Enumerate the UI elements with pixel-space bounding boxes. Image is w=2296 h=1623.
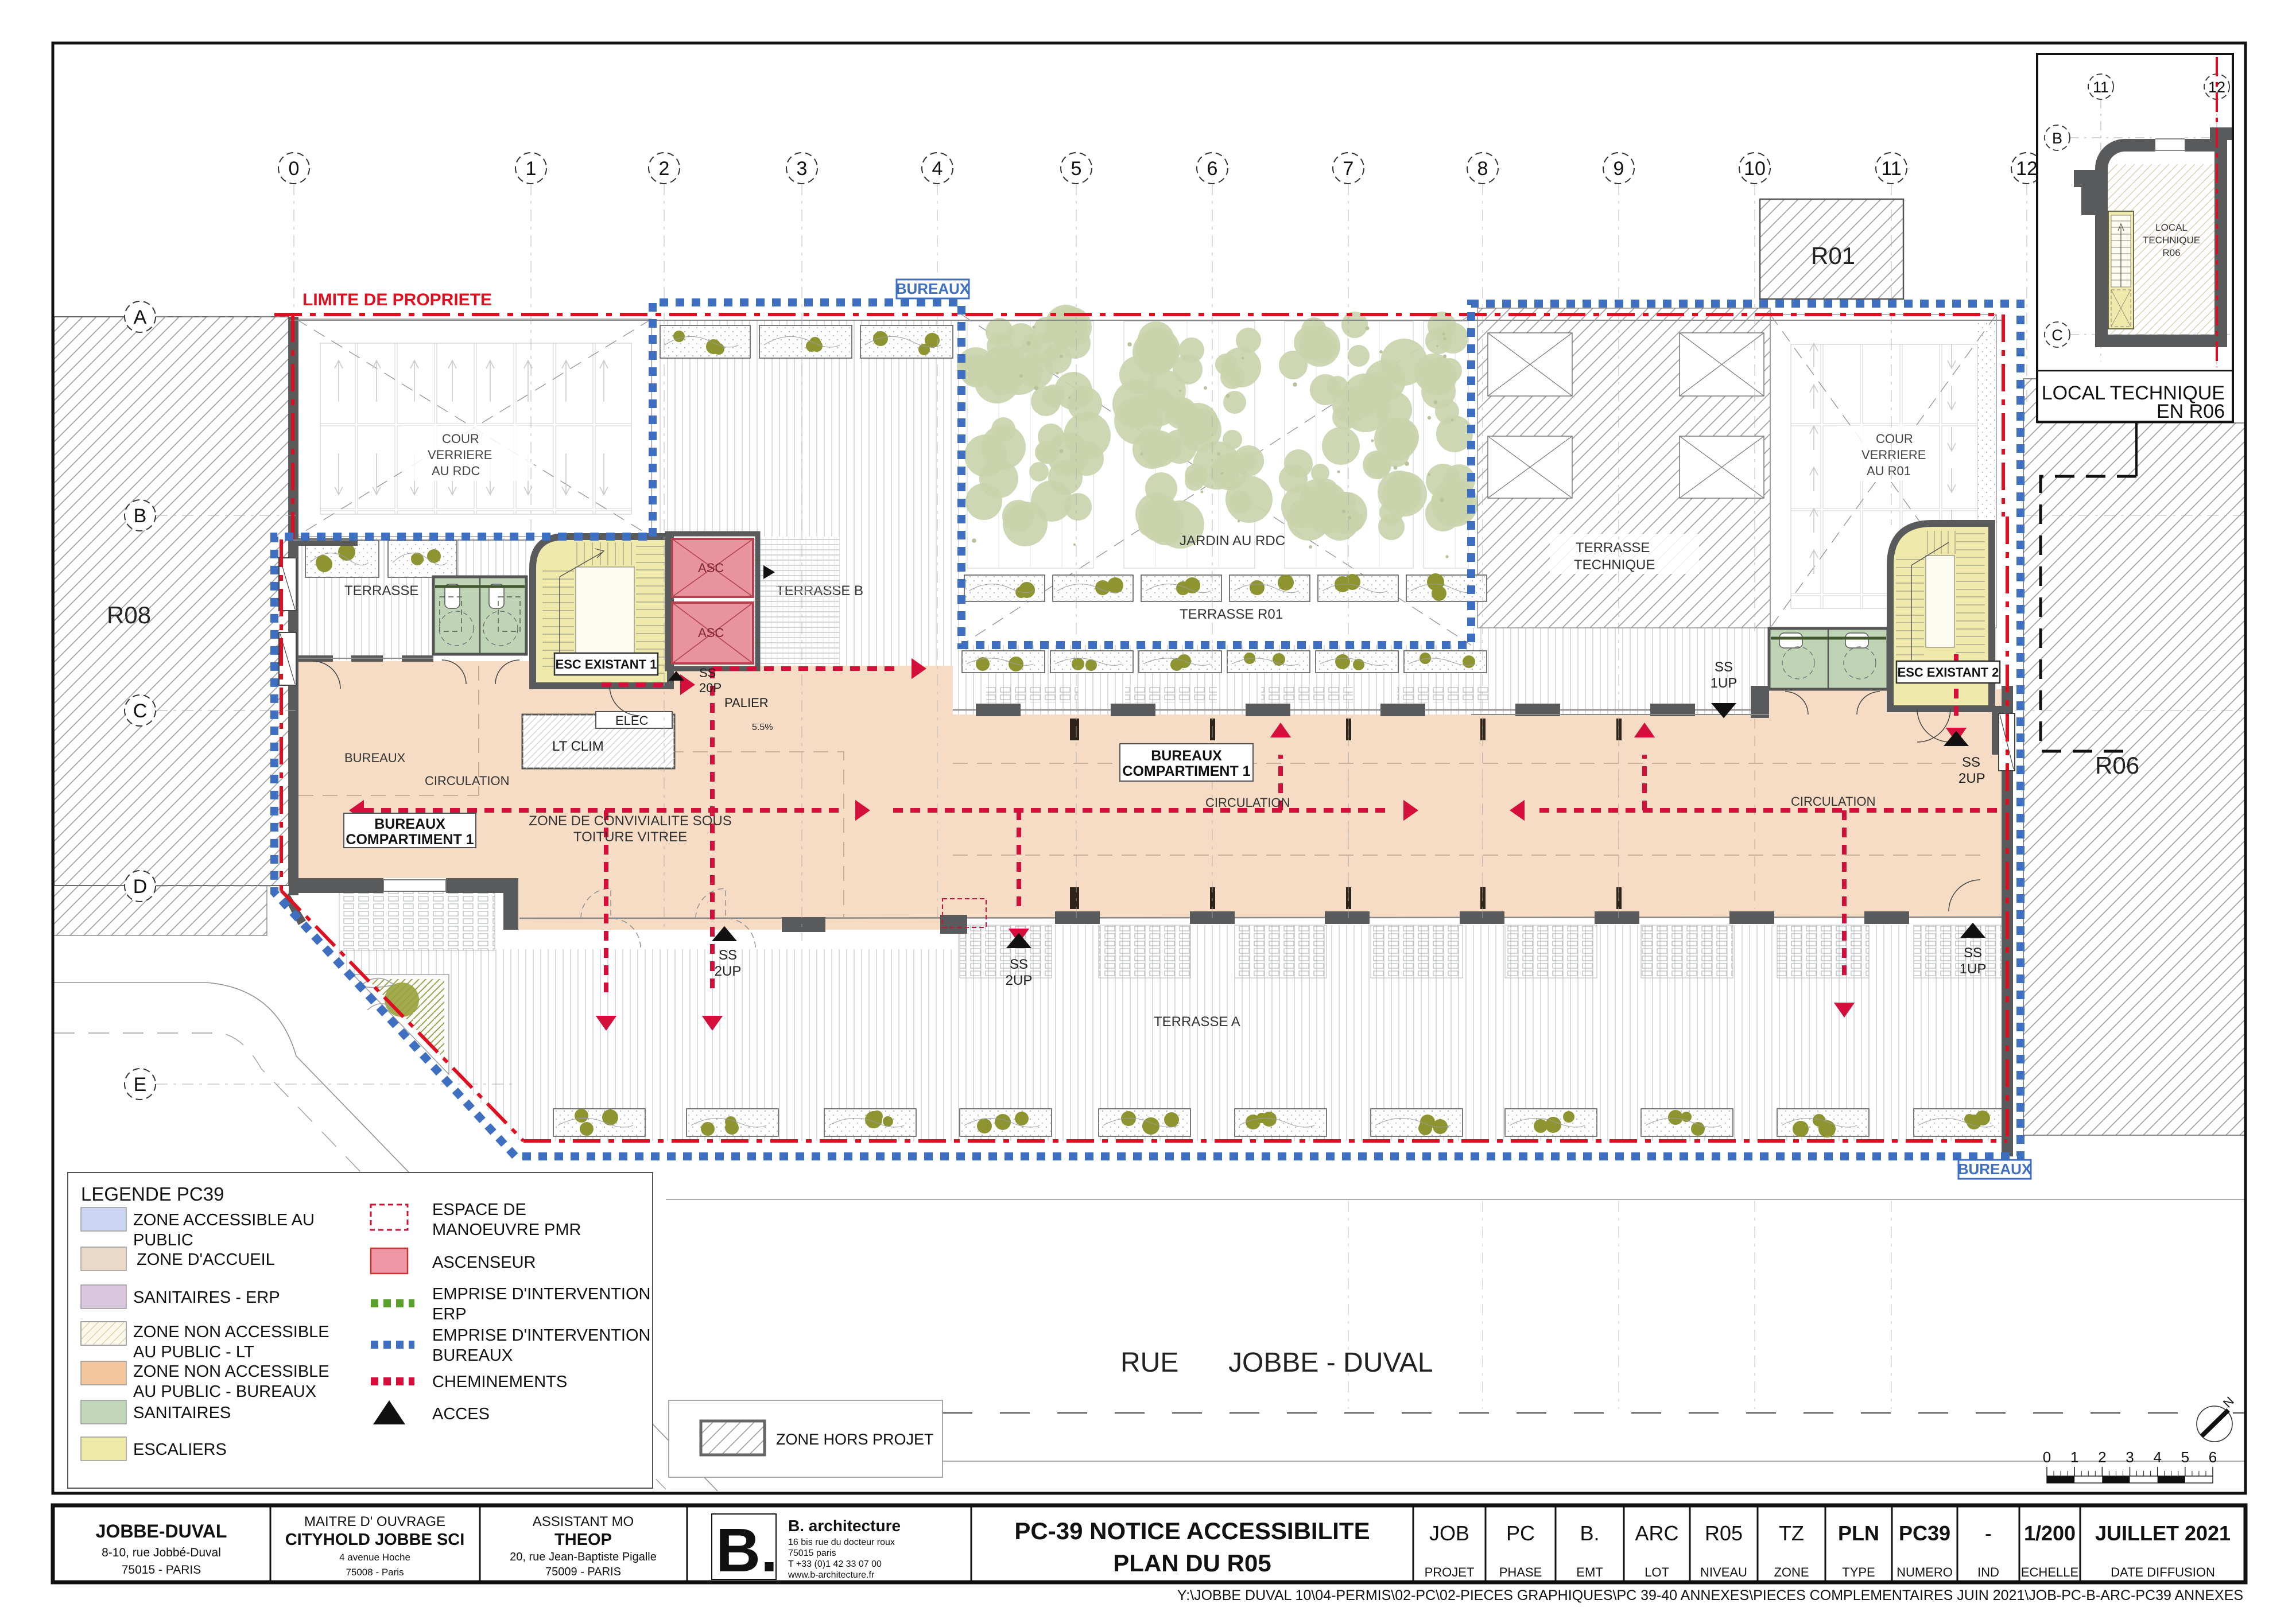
svg-text:PC-39 NOTICE ACCESSIBILITE: PC-39 NOTICE ACCESSIBILITE	[1014, 1517, 1370, 1544]
svg-text:5: 5	[2181, 1449, 2189, 1466]
svg-text:11: 11	[1881, 158, 1901, 180]
svg-text:B: B	[134, 505, 147, 527]
svg-text:ASSISTANT MO: ASSISTANT MO	[533, 1514, 634, 1529]
svg-text:CIRCULATION: CIRCULATION	[1791, 794, 1876, 809]
svg-text:JUILLET 2021: JUILLET 2021	[2095, 1521, 2231, 1545]
svg-text:LEGENDE PC39: LEGENDE PC39	[81, 1183, 224, 1205]
svg-text:PROJET: PROJET	[1425, 1565, 1475, 1579]
svg-text:BUREAUX: BUREAUX	[1958, 1160, 2032, 1178]
svg-text:B.: B.	[1580, 1521, 1599, 1545]
svg-text:11: 11	[2093, 79, 2109, 96]
svg-text:ZONE NON ACCESSIBLE: ZONE NON ACCESSIBLE	[133, 1323, 329, 1341]
svg-text:BUREAUX: BUREAUX	[374, 816, 445, 832]
svg-text:TOITURE VITREE: TOITURE VITREE	[573, 829, 687, 845]
svg-text:LT CLIM: LT CLIM	[552, 739, 604, 754]
svg-text:EMPRISE D'INTERVENTION: EMPRISE D'INTERVENTION	[432, 1326, 650, 1345]
svg-text:ASCENSEUR: ASCENSEUR	[432, 1253, 536, 1272]
svg-text:TZ: TZ	[1779, 1521, 1804, 1545]
svg-text:2: 2	[2098, 1449, 2106, 1466]
svg-text:3: 3	[797, 158, 808, 180]
svg-text:1UP: 1UP	[1711, 675, 1737, 691]
svg-text:TERRASSE R01: TERRASSE R01	[1180, 607, 1283, 622]
svg-text:9: 9	[1614, 158, 1624, 180]
svg-text:R01: R01	[1811, 242, 1855, 269]
svg-text:1: 1	[526, 158, 537, 180]
svg-text:TECHNIQUE: TECHNIQUE	[2143, 235, 2200, 246]
svg-text:ELEC: ELEC	[615, 713, 649, 728]
svg-text:BUREAUX: BUREAUX	[896, 280, 970, 297]
svg-text:C: C	[2051, 327, 2063, 344]
svg-text:LOCAL: LOCAL	[2155, 222, 2188, 233]
svg-text:6: 6	[2209, 1449, 2217, 1466]
svg-text:ZONE HORS PROJET: ZONE HORS PROJET	[776, 1431, 934, 1448]
svg-text:5.5%: 5.5%	[752, 723, 773, 732]
svg-text:JOBBE - DUVAL: JOBBE - DUVAL	[1228, 1348, 1433, 1378]
svg-text:ZONE NON ACCESSIBLE: ZONE NON ACCESSIBLE	[133, 1362, 329, 1381]
svg-text:20, rue Jean-Baptiste Pigalle: 20, rue Jean-Baptiste Pigalle	[510, 1551, 657, 1563]
svg-text:CHEMINEMENTS: CHEMINEMENTS	[432, 1373, 567, 1391]
svg-text:IND: IND	[1977, 1565, 1999, 1579]
svg-text:8-10, rue Jobbé-Duval: 8-10, rue Jobbé-Duval	[102, 1546, 221, 1559]
svg-text:THEOP: THEOP	[554, 1531, 612, 1549]
svg-text:NUMERO: NUMERO	[1896, 1565, 1953, 1579]
svg-text:www.b-architecture.fr: www.b-architecture.fr	[788, 1570, 875, 1580]
svg-text:BUREAUX: BUREAUX	[1151, 748, 1222, 764]
svg-text:SANITAIRES: SANITAIRES	[133, 1404, 231, 1422]
svg-text:16 bis rue du docteur roux: 16 bis rue du docteur roux	[788, 1537, 895, 1547]
svg-text:0: 0	[289, 158, 300, 180]
svg-text:Y:\JOBBE DUVAL 10\04-PERMIS\02: Y:\JOBBE DUVAL 10\04-PERMIS\02-PC\02-PIE…	[1177, 1587, 2243, 1603]
svg-text:VERRIERE: VERRIERE	[1861, 448, 1926, 462]
svg-text:B.: B.	[716, 1515, 778, 1585]
svg-text:SS: SS	[1715, 659, 1733, 675]
svg-text:MAITRE D' OUVRAGE: MAITRE D' OUVRAGE	[304, 1514, 445, 1529]
svg-text:TERRASSE: TERRASSE	[1576, 540, 1650, 556]
svg-text:E: E	[134, 1074, 147, 1096]
svg-text:COMPARTIMENT 1: COMPARTIMENT 1	[346, 832, 474, 848]
svg-text:1/200: 1/200	[2024, 1521, 2076, 1545]
svg-text:ZONE D'ACCUEIL: ZONE D'ACCUEIL	[137, 1251, 275, 1269]
svg-text:EMPRISE D'INTERVENTION: EMPRISE D'INTERVENTION	[432, 1285, 650, 1303]
svg-text:VERRIERE: VERRIERE	[428, 448, 492, 462]
svg-text:CITYHOLD JOBBE SCI: CITYHOLD JOBBE SCI	[285, 1531, 465, 1549]
svg-text:75015 - PARIS: 75015 - PARIS	[122, 1563, 201, 1577]
svg-text:SS: SS	[1010, 957, 1028, 972]
svg-text:2: 2	[659, 158, 670, 180]
svg-text:TYPE: TYPE	[1842, 1565, 1875, 1579]
svg-text:COUR: COUR	[1876, 432, 1913, 446]
svg-text:0: 0	[2043, 1449, 2051, 1466]
svg-text:75008 - Paris: 75008 - Paris	[346, 1567, 404, 1578]
svg-text:ESC EXISTANT 1: ESC EXISTANT 1	[556, 657, 657, 671]
svg-text:BUREAUX: BUREAUX	[344, 751, 406, 765]
svg-text:AU R01: AU R01	[1867, 464, 1911, 478]
svg-text:B. architecture: B. architecture	[788, 1517, 901, 1535]
svg-text:2UP: 2UP	[1958, 771, 1985, 786]
svg-text:4 avenue Hoche: 4 avenue Hoche	[339, 1552, 410, 1563]
svg-text:AU PUBLIC - BUREAUX: AU PUBLIC - BUREAUX	[133, 1383, 316, 1401]
svg-text:COMPARTIMENT 1: COMPARTIMENT 1	[1122, 763, 1250, 779]
svg-text:4: 4	[2153, 1449, 2161, 1466]
svg-text:SS: SS	[1964, 945, 1982, 961]
svg-text:JOB: JOB	[1429, 1521, 1469, 1545]
svg-text:ACCES: ACCES	[432, 1405, 490, 1423]
svg-text:AU PUBLIC - LT: AU PUBLIC - LT	[133, 1343, 254, 1361]
svg-text:SANITAIRES - ERP: SANITAIRES - ERP	[133, 1288, 280, 1307]
svg-text:JOBBE-DUVAL: JOBBE-DUVAL	[96, 1521, 227, 1542]
svg-text:R08: R08	[107, 601, 151, 628]
svg-text:MANOEUVRE PMR: MANOEUVRE PMR	[432, 1221, 581, 1239]
svg-text:AU RDC: AU RDC	[432, 464, 480, 478]
svg-text:ARC: ARC	[1635, 1521, 1678, 1545]
svg-text:R05: R05	[1705, 1521, 1743, 1545]
svg-text:ESPACE DE: ESPACE DE	[432, 1201, 526, 1219]
svg-text:TECHNIQUE: TECHNIQUE	[1574, 557, 1655, 573]
svg-text:SS: SS	[719, 948, 737, 963]
svg-text:LOT: LOT	[1645, 1565, 1669, 1579]
svg-text:R06: R06	[2162, 247, 2180, 258]
svg-text:20P: 20P	[699, 681, 722, 695]
svg-text:ASC: ASC	[698, 626, 724, 640]
svg-text:BUREAUX: BUREAUX	[432, 1346, 513, 1365]
svg-text:ZONE DE CONVIVIALITE SOUS: ZONE DE CONVIVIALITE SOUS	[529, 813, 731, 829]
svg-text:6: 6	[1207, 158, 1218, 180]
svg-text:75015 paris: 75015 paris	[788, 1548, 836, 1558]
svg-text:ERP: ERP	[432, 1305, 467, 1323]
svg-text:2UP: 2UP	[1006, 973, 1033, 988]
svg-text:PC: PC	[1506, 1521, 1535, 1545]
svg-text:75009 - PARIS: 75009 - PARIS	[545, 1566, 621, 1578]
svg-text:3: 3	[2126, 1449, 2134, 1466]
svg-text:R06: R06	[2095, 752, 2139, 779]
svg-text:D: D	[133, 876, 148, 898]
svg-text:PHASE: PHASE	[1499, 1565, 1542, 1579]
svg-text:T +33 (0)1 42 33 07 00: T +33 (0)1 42 33 07 00	[788, 1559, 882, 1569]
svg-text:ZONE ACCESSIBLE AU: ZONE ACCESSIBLE AU	[133, 1211, 315, 1229]
svg-text:ZONE: ZONE	[1774, 1565, 1809, 1579]
svg-text:EN R06: EN R06	[2157, 401, 2225, 422]
svg-text:JARDIN AU RDC: JARDIN AU RDC	[1180, 533, 1285, 549]
svg-text:C: C	[133, 700, 148, 722]
svg-text:-: -	[1985, 1521, 1992, 1545]
svg-text:NIVEAU: NIVEAU	[1700, 1565, 1747, 1579]
svg-text:10: 10	[1744, 158, 1766, 180]
svg-text:PALIER: PALIER	[724, 696, 769, 710]
svg-text:RUE: RUE	[1120, 1348, 1178, 1378]
svg-text:ECHELLE: ECHELLE	[2021, 1565, 2078, 1579]
svg-text:PUBLIC: PUBLIC	[133, 1231, 193, 1249]
svg-text:COUR: COUR	[442, 432, 479, 446]
svg-text:ESCALIERS: ESCALIERS	[133, 1440, 227, 1459]
svg-text:TERRASSE: TERRASSE	[344, 583, 418, 599]
svg-text:1: 1	[2070, 1449, 2078, 1466]
svg-text:CIRCULATION: CIRCULATION	[425, 774, 510, 788]
svg-text:B: B	[2052, 130, 2062, 147]
svg-text:PC39: PC39	[1899, 1521, 1950, 1545]
svg-text:ASC: ASC	[698, 561, 724, 575]
svg-text:PLN: PLN	[1838, 1521, 1879, 1545]
svg-text:DATE DIFFUSION: DATE DIFFUSION	[2111, 1565, 2215, 1579]
svg-text:ESC EXISTANT 2: ESC EXISTANT 2	[1898, 665, 1999, 680]
svg-text:EMT: EMT	[1576, 1565, 1603, 1579]
svg-text:SS: SS	[699, 666, 716, 680]
svg-text:8: 8	[1477, 158, 1488, 180]
svg-text:5: 5	[1071, 158, 1082, 180]
svg-text:LIMITE DE PROPRIETE: LIMITE DE PROPRIETE	[302, 290, 492, 309]
svg-text:A: A	[134, 306, 147, 328]
svg-text:CIRCULATION: CIRCULATION	[1205, 795, 1290, 810]
svg-text:4: 4	[932, 158, 943, 180]
svg-text:12: 12	[2016, 158, 2038, 180]
svg-text:2UP: 2UP	[715, 964, 742, 979]
svg-text:PLAN DU R05: PLAN DU R05	[1113, 1550, 1271, 1577]
svg-text:1UP: 1UP	[1960, 961, 1987, 977]
svg-text:TERRASSE A: TERRASSE A	[1154, 1014, 1240, 1030]
svg-text:SS: SS	[1962, 755, 1980, 770]
svg-text:7: 7	[1343, 158, 1354, 180]
